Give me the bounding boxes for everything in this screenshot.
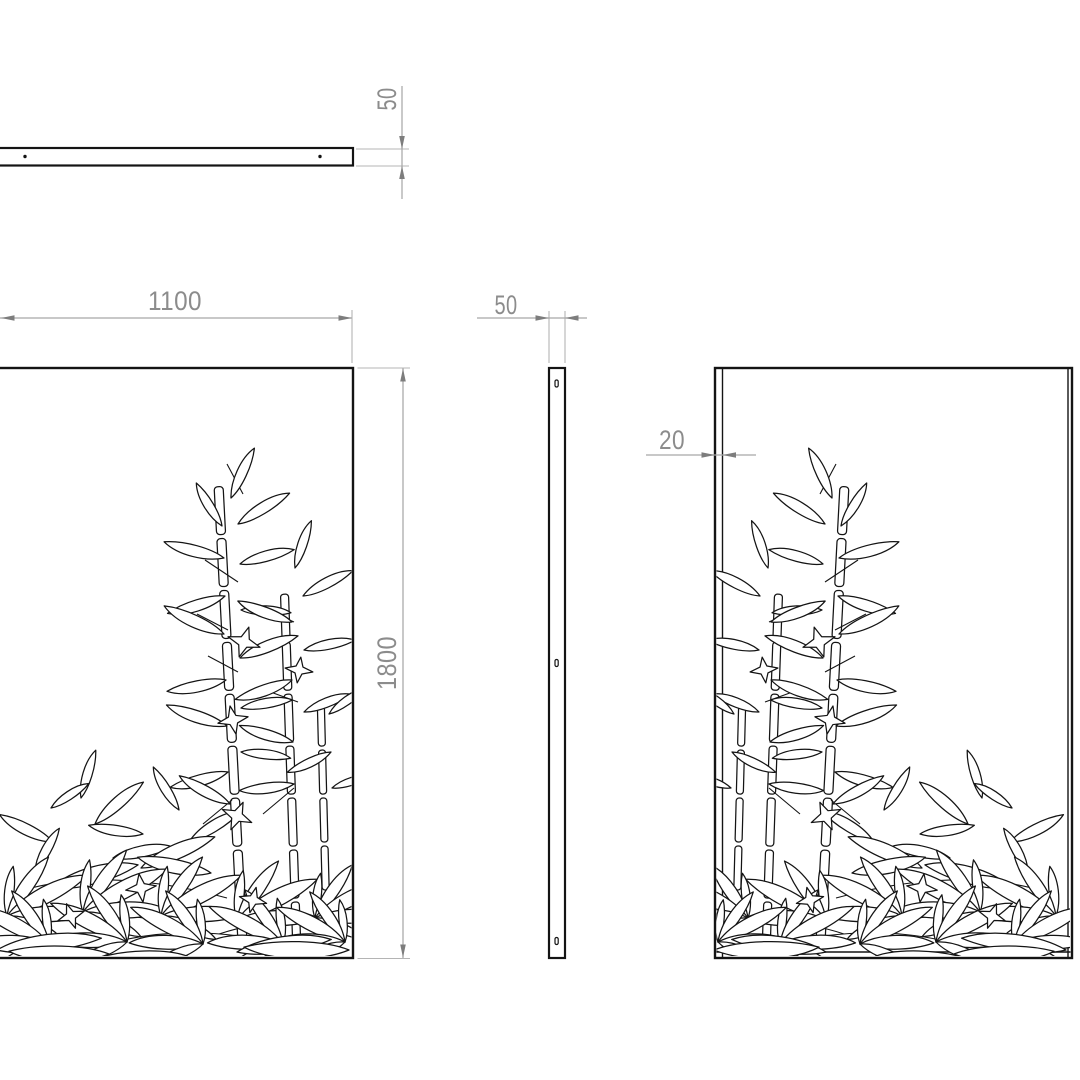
dim-text-panel-width: 1100 xyxy=(148,286,202,316)
dim-bar-thickness: 50 xyxy=(356,86,409,199)
drawing-svg: 50 1100 1800 50 xyxy=(0,0,1080,1080)
front-view xyxy=(0,368,391,971)
dim-text-panel-height: 1800 xyxy=(372,636,402,690)
technical-drawing-canvas: 50 1100 1800 50 xyxy=(0,0,1080,1080)
top-view xyxy=(0,148,353,166)
side-view-slot-middle xyxy=(555,660,558,667)
side-view-slot-top xyxy=(555,380,558,387)
dim-panel-height: 1800 xyxy=(358,368,411,959)
top-view-outline xyxy=(0,148,353,166)
top-view-hole-right xyxy=(318,155,321,158)
top-view-hole-left xyxy=(23,155,26,158)
dim-text-bar-thickness: 50 xyxy=(372,88,402,111)
rear-view xyxy=(672,368,1080,971)
side-view xyxy=(549,368,565,958)
dim-panel-thickness: 50 xyxy=(477,290,587,363)
dim-text-flange-offset: 20 xyxy=(659,425,685,455)
side-view-slot-bottom xyxy=(555,938,558,945)
dim-panel-width: 1100 xyxy=(0,286,352,363)
dim-text-panel-thickness: 50 xyxy=(495,290,518,320)
